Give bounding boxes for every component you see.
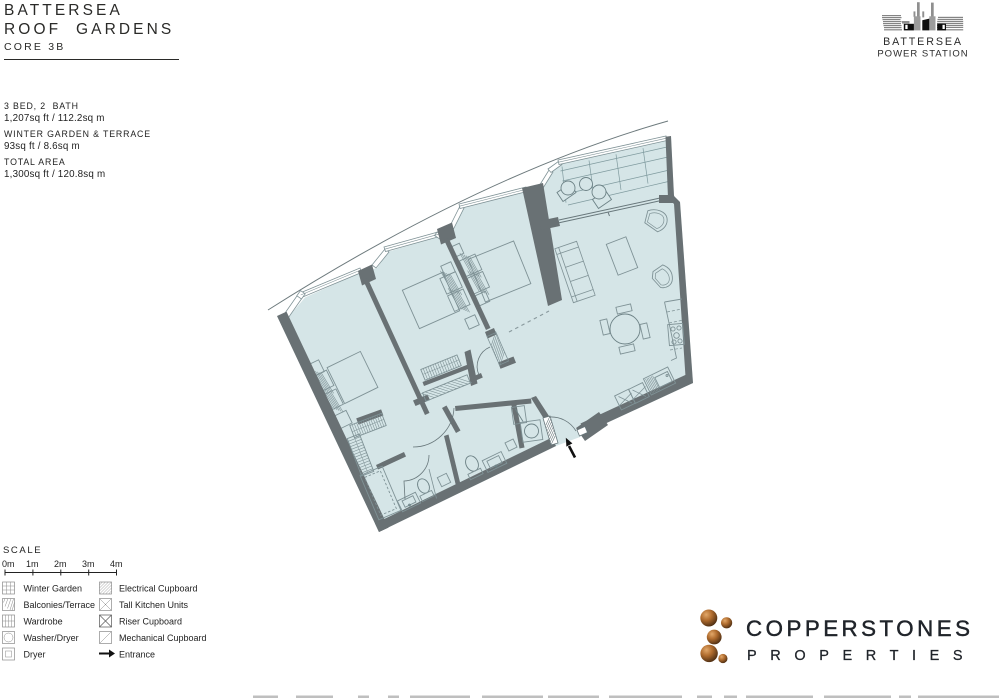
svg-text:2m: 2m <box>54 559 67 569</box>
svg-text:Electrical Cupboard: Electrical Cupboard <box>119 584 198 594</box>
svg-text:Mechanical Cupboard: Mechanical Cupboard <box>119 633 207 643</box>
svg-text:0m: 0m <box>2 559 15 569</box>
svg-text:Dryer: Dryer <box>24 650 46 660</box>
svg-text:Winter Garden: Winter Garden <box>24 584 83 594</box>
svg-text:COPPERSTONES: COPPERSTONES <box>746 616 973 641</box>
svg-text:Entrance: Entrance <box>119 650 155 660</box>
svg-text:Tall Kitchen Units: Tall Kitchen Units <box>119 600 189 610</box>
svg-text:Washer/Dryer: Washer/Dryer <box>24 633 79 643</box>
svg-text:Balconies/Terrace: Balconies/Terrace <box>24 600 96 610</box>
svg-text:4m: 4m <box>110 559 123 569</box>
svg-text:1m: 1m <box>26 559 39 569</box>
svg-text:Wardrobe: Wardrobe <box>24 617 63 627</box>
svg-text:3m: 3m <box>82 559 95 569</box>
svg-text:PROPERTIES: PROPERTIES <box>747 648 976 664</box>
svg-text:Riser Cupboard: Riser Cupboard <box>119 617 182 627</box>
